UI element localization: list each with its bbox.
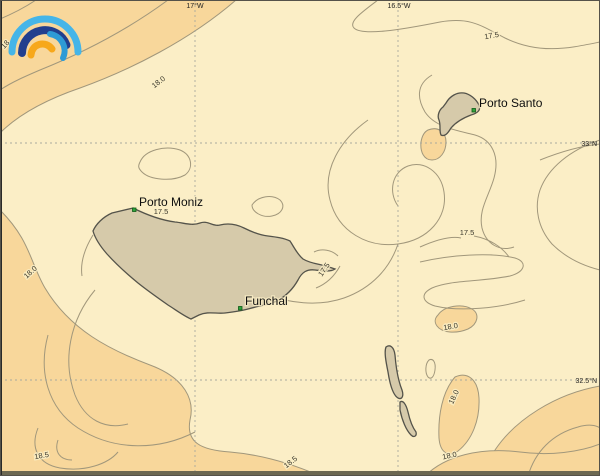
label-porto-santo: Porto Santo — [479, 96, 543, 110]
map-canvas[interactable]: 18 18.0 17.5 17.5 17.5 17.5 18.0 18.0 18… — [0, 0, 600, 476]
label-funchal: Funchal — [245, 294, 288, 308]
marker-porto-moniz — [133, 208, 137, 212]
contour-label: 17.5 — [460, 228, 475, 237]
tick-16-5w: 16.5°W — [387, 2, 410, 10]
marker-porto-santo — [472, 109, 476, 113]
label-porto-moniz: Porto Moniz — [139, 195, 203, 209]
marker-funchal — [239, 307, 243, 311]
map-window: 18 18.0 17.5 17.5 17.5 17.5 18.0 18.0 18… — [0, 0, 600, 476]
tick-17w: 17°W — [186, 2, 204, 10]
tick-33n: 33°N — [581, 140, 597, 148]
tick-32-5n: 32.5°N — [576, 377, 597, 385]
